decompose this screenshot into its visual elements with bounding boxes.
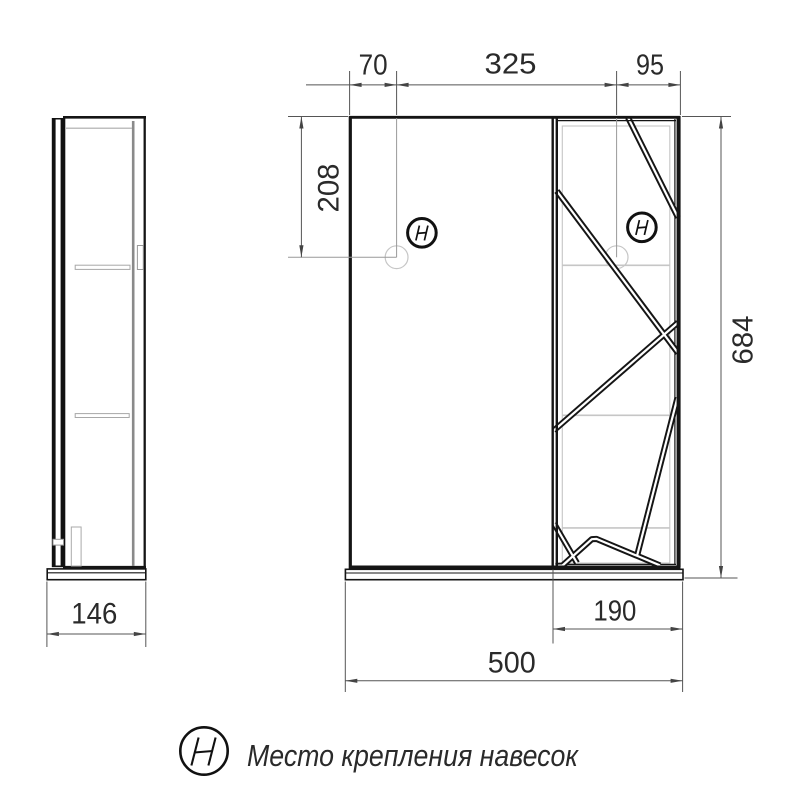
svg-text:95: 95 xyxy=(636,50,664,82)
svg-text:70: 70 xyxy=(359,50,388,82)
svg-text:325: 325 xyxy=(485,49,537,81)
svg-text:Место крепления навесок: Место крепления навесок xyxy=(247,738,579,773)
svg-text:208: 208 xyxy=(313,164,346,213)
svg-text:500: 500 xyxy=(488,647,536,680)
svg-text:190: 190 xyxy=(593,596,636,628)
svg-text:146: 146 xyxy=(71,598,117,631)
svg-text:684: 684 xyxy=(728,316,760,365)
